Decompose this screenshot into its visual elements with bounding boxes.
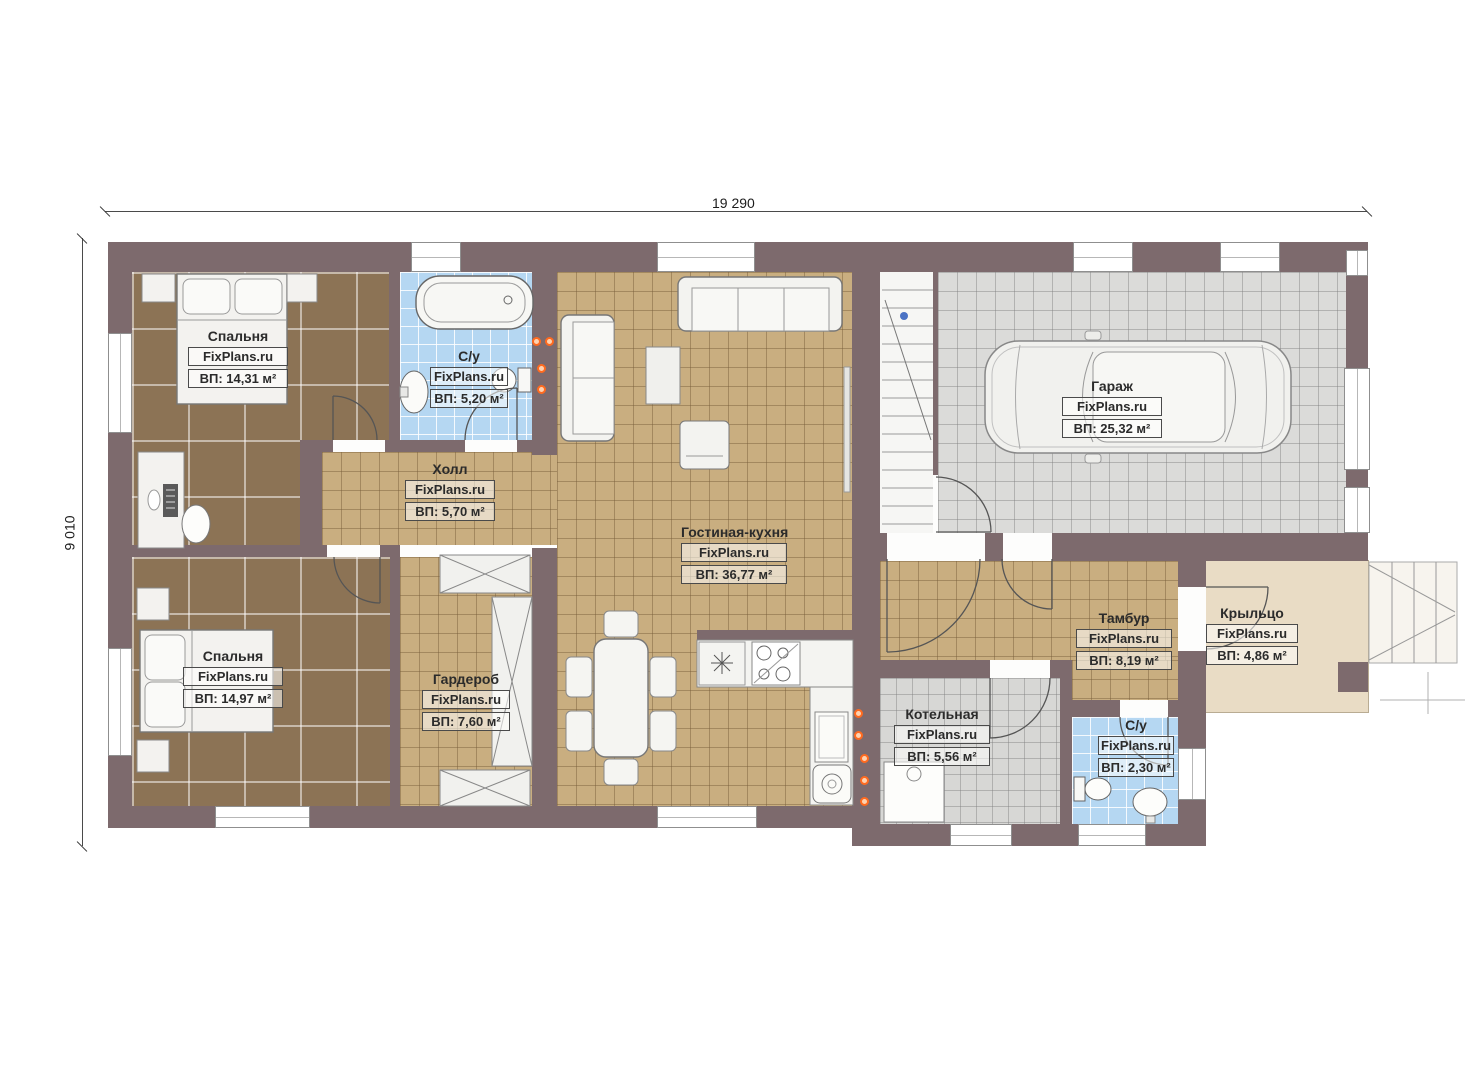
washing-machine bbox=[813, 765, 851, 803]
dishwasher bbox=[815, 712, 848, 762]
sink bbox=[1133, 788, 1167, 823]
tv bbox=[844, 367, 850, 492]
room-name: С/у bbox=[1098, 718, 1174, 733]
room-name: Гостиная-кухня bbox=[681, 525, 787, 540]
room-watermark: FixPlans.ru bbox=[681, 543, 787, 562]
toilet bbox=[1074, 777, 1111, 801]
room-name: Котельная bbox=[894, 707, 990, 722]
room-area: ВП: 5,20 м² bbox=[430, 389, 508, 408]
room-area: ВП: 7,60 м² bbox=[422, 712, 510, 731]
room-area: ВП: 14,97 м² bbox=[183, 689, 283, 708]
room-label-bedroom-1: Спальня FixPlans.ru ВП: 14,31 м² bbox=[188, 329, 288, 388]
room-watermark: FixPlans.ru bbox=[422, 690, 510, 709]
room-name: Гараж bbox=[1062, 379, 1162, 394]
sofa bbox=[561, 315, 614, 441]
room-area: ВП: 5,70 м² bbox=[405, 502, 495, 521]
utility-marker bbox=[860, 754, 869, 763]
room-watermark: FixPlans.ru bbox=[188, 347, 288, 366]
utility-marker bbox=[545, 337, 554, 346]
sink-symbol bbox=[711, 652, 733, 674]
room-watermark: FixPlans.ru bbox=[1098, 736, 1174, 755]
utility-marker bbox=[860, 797, 869, 806]
room-watermark: FixPlans.ru bbox=[405, 480, 495, 499]
coffee-table bbox=[646, 347, 680, 404]
room-label-living-kitchen: Гостиная-кухня FixPlans.ru ВП: 36,77 м² bbox=[681, 525, 787, 584]
room-label-bathroom-2: С/у FixPlans.ru ВП: 2,30 м² bbox=[1098, 718, 1174, 777]
room-area: ВП: 14,31 м² bbox=[188, 369, 288, 388]
sofa bbox=[678, 277, 842, 331]
room-watermark: FixPlans.ru bbox=[183, 667, 283, 686]
room-name: Гардероб bbox=[422, 672, 510, 687]
room-label-vestibule: Тамбур FixPlans.ru ВП: 8,19 м² bbox=[1076, 611, 1172, 670]
room-watermark: FixPlans.ru bbox=[1062, 397, 1162, 416]
room-name: Крыльцо bbox=[1206, 606, 1298, 621]
utility-marker bbox=[537, 364, 546, 373]
utility-marker bbox=[854, 731, 863, 740]
porch-steps bbox=[1369, 562, 1465, 714]
room-name: Холл bbox=[405, 462, 495, 477]
room-area: ВП: 8,19 м² bbox=[1076, 651, 1172, 670]
room-label-bathroom-1: С/у FixPlans.ru ВП: 5,20 м² bbox=[430, 349, 508, 408]
room-name: С/у bbox=[430, 349, 508, 364]
room-label-bedroom-2: Спальня FixPlans.ru ВП: 14,97 м² bbox=[183, 649, 283, 708]
utility-marker bbox=[537, 385, 546, 394]
room-area: ВП: 36,77 м² bbox=[681, 565, 787, 584]
staircase bbox=[882, 290, 933, 524]
bathtub bbox=[416, 276, 533, 329]
room-watermark: FixPlans.ru bbox=[1076, 629, 1172, 648]
room-name: Спальня bbox=[188, 329, 288, 344]
room-watermark: FixPlans.ru bbox=[894, 725, 990, 744]
utility-marker bbox=[860, 776, 869, 785]
kitchen-counter bbox=[697, 630, 853, 805]
boiler bbox=[884, 762, 944, 822]
room-name: Тамбур bbox=[1076, 611, 1172, 626]
room-area: ВП: 2,30 м² bbox=[1098, 758, 1174, 777]
room-area: ВП: 25,32 м² bbox=[1062, 419, 1162, 438]
room-label-garage: Гараж FixPlans.ru ВП: 25,32 м² bbox=[1062, 379, 1162, 438]
room-label-wardrobe: Гардероб FixPlans.ru ВП: 7,60 м² bbox=[422, 672, 510, 731]
sink bbox=[400, 371, 428, 413]
floor-plan: 19 290 9 010 bbox=[0, 0, 1474, 1080]
room-watermark: FixPlans.ru bbox=[1206, 624, 1298, 643]
utility-marker bbox=[854, 709, 863, 718]
room-name: Спальня bbox=[183, 649, 283, 664]
room-area: ВП: 4,86 м² bbox=[1206, 646, 1298, 665]
room-label-porch: Крыльцо FixPlans.ru ВП: 4,86 м² bbox=[1206, 606, 1298, 665]
room-watermark: FixPlans.ru bbox=[430, 367, 508, 386]
room-label-hall: Холл FixPlans.ru ВП: 5,70 м² bbox=[405, 462, 495, 521]
desk bbox=[138, 452, 210, 548]
stove bbox=[752, 642, 800, 685]
dining-table bbox=[566, 611, 676, 785]
room-area: ВП: 5,56 м² bbox=[894, 747, 990, 766]
utility-marker bbox=[532, 337, 541, 346]
stair-marker bbox=[900, 312, 908, 320]
armchair bbox=[680, 421, 729, 469]
room-label-boiler-room: Котельная FixPlans.ru ВП: 5,56 м² bbox=[894, 707, 990, 766]
